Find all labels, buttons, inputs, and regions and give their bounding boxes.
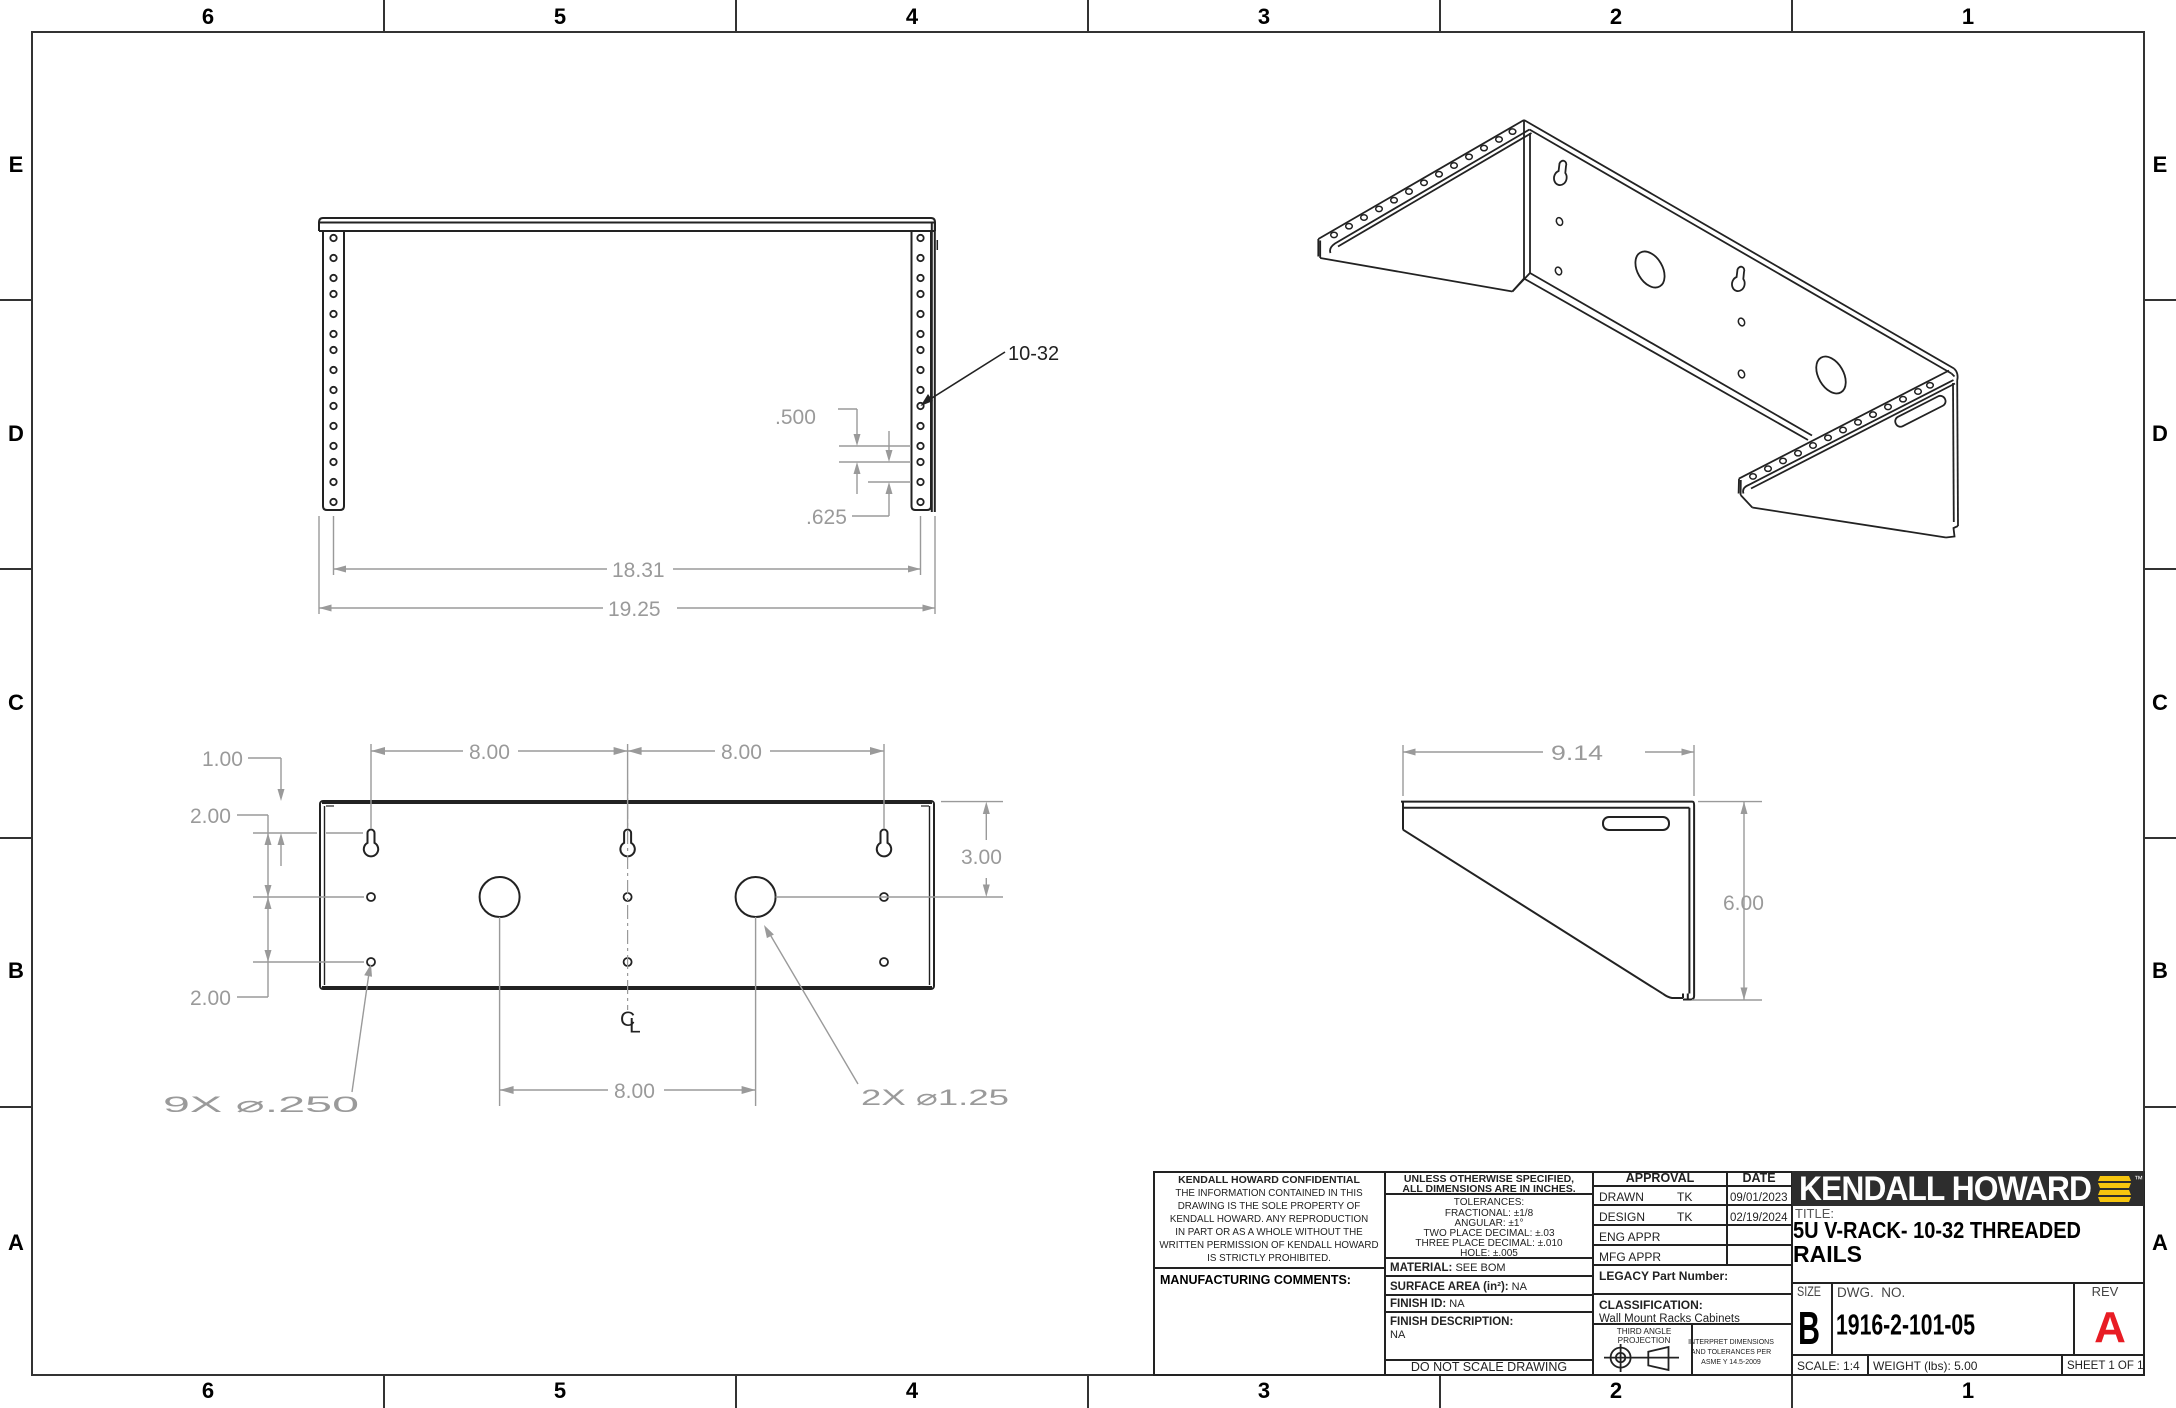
svg-text:AND TOLERANCES PER: AND TOLERANCES PER [1691,1349,1771,1356]
svg-text:B: B [1798,1302,1820,1354]
svg-text:RAILS: RAILS [1793,1241,1862,1267]
svg-text:HOLE: ±.005: HOLE: ±.005 [1460,1248,1518,1259]
svg-text:C: C [8,690,24,715]
svg-text:6: 6 [202,1378,214,1403]
svg-text:E: E [9,152,24,177]
svg-text:INTERPRET DIMENSIONS: INTERPRET DIMENSIONS [1688,1339,1774,1346]
svg-text:SIZE: SIZE [1797,1284,1821,1299]
svg-text:ENG APPR: ENG APPR [1599,1230,1661,1244]
svg-text:B: B [2152,958,2168,983]
svg-text:9.14: 9.14 [1551,742,1603,765]
svg-text:THIRD ANGLE: THIRD ANGLE [1617,1327,1672,1336]
svg-text:1.00: 1.00 [202,748,243,771]
svg-text:APPROVAL: APPROVAL [1626,1171,1695,1185]
svg-text:SHEET 1 OF 1: SHEET 1 OF 1 [2067,1360,2143,1372]
svg-text:FINISH DESCRIPTION:: FINISH DESCRIPTION: [1390,1316,1513,1328]
svg-text:6.00: 6.00 [1723,892,1764,915]
svg-text:KENDALL HOWARD: KENDALL HOWARD [1799,1170,2091,1208]
svg-text:NA: NA [1390,1329,1406,1341]
svg-text:DRAWN: DRAWN [1599,1190,1644,1204]
svg-text:18.31: 18.31 [612,559,665,582]
svg-text:2X ⌀1.25: 2X ⌀1.25 [861,1085,1009,1110]
svg-text:2.00: 2.00 [190,987,231,1010]
svg-text:WEIGHT (lbs): 5.00: WEIGHT (lbs): 5.00 [1873,1359,1978,1373]
svg-text:E: E [2153,152,2168,177]
svg-text:A: A [8,1230,24,1255]
svg-text:L: L [629,1015,641,1038]
svg-text:3.00: 3.00 [961,846,1002,869]
svg-text:.500: .500 [775,406,816,429]
svg-text:10-32: 10-32 [1008,343,1059,365]
svg-text:TK: TK [1677,1210,1692,1224]
svg-text:ASME Y 14.5-2009: ASME Y 14.5-2009 [1701,1359,1761,1366]
svg-text:8.00: 8.00 [469,741,510,764]
svg-text:B: B [8,958,24,983]
svg-text:WRITTEN PERMISSION OF KENDALL: WRITTEN PERMISSION OF KENDALL HOWARD [1159,1240,1378,1251]
svg-text:CLASSIFICATION:: CLASSIFICATION: [1599,1298,1703,1312]
svg-text:IS STRICTLY PROHIBITED.: IS STRICTLY PROHIBITED. [1207,1253,1331,1264]
svg-text:MATERIAL: SEE BOM: MATERIAL: SEE BOM [1390,1262,1506,1274]
svg-text:1916-2-101-05: 1916-2-101-05 [1836,1310,1975,1342]
svg-text:ALL DIMENSIONS ARE IN INCHES.: ALL DIMENSIONS ARE IN INCHES. [1402,1183,1575,1195]
svg-text:A: A [2094,1303,2126,1352]
svg-text:D: D [2152,421,2168,446]
svg-text:1: 1 [1962,4,1974,29]
svg-text:DESIGN: DESIGN [1599,1210,1645,1224]
svg-text:02/19/2024: 02/19/2024 [1730,1212,1788,1224]
svg-text:8.00: 8.00 [614,1080,655,1103]
svg-text:19.25: 19.25 [608,598,661,621]
svg-text:09/01/2023: 09/01/2023 [1730,1192,1788,1204]
svg-text:8.00: 8.00 [721,741,762,764]
svg-text:DATE: DATE [1742,1171,1775,1185]
svg-text:C: C [2152,690,2168,715]
svg-text:.625: .625 [806,506,847,529]
svg-text:SURFACE AREA (in²): NA: SURFACE AREA (in²): NA [1390,1281,1528,1293]
svg-text:4: 4 [906,1378,919,1403]
svg-text:6: 6 [202,4,214,29]
svg-text:DO NOT SCALE DRAWING: DO NOT SCALE DRAWING [1411,1360,1567,1374]
svg-text:FINISH ID: NA: FINISH ID: NA [1390,1298,1465,1310]
svg-text:MFG APPR: MFG APPR [1599,1250,1661,1264]
svg-text:5U V-RACK- 10-32 THREADED: 5U V-RACK- 10-32 THREADED [1793,1217,2081,1243]
svg-text:™: ™ [2134,1174,2143,1184]
svg-text:PROJECTION: PROJECTION [1618,1336,1671,1345]
svg-text:2: 2 [1610,1378,1622,1403]
svg-text:Wall Mount Racks Cabinets: Wall Mount Racks Cabinets [1599,1313,1740,1325]
svg-text:2.00: 2.00 [190,805,231,828]
svg-text:LEGACY Part Number:: LEGACY Part Number: [1599,1269,1728,1283]
svg-text:SCALE: 1:4: SCALE: 1:4 [1797,1359,1860,1373]
svg-text:A: A [2152,1230,2168,1255]
svg-text:9X ⌀.250: 9X ⌀.250 [163,1092,359,1117]
svg-text:THE INFORMATION CONTAINED IN T: THE INFORMATION CONTAINED IN THIS [1175,1188,1363,1199]
svg-text:3: 3 [1258,4,1270,29]
svg-text:REV: REV [2092,1284,2119,1299]
svg-text:DRAWING IS THE SOLE PROPERTY O: DRAWING IS THE SOLE PROPERTY OF [1178,1201,1361,1212]
svg-text:TK: TK [1677,1190,1692,1204]
svg-text:IN PART OR AS A WHOLE WITHOUT: IN PART OR AS A WHOLE WITHOUT THE [1175,1227,1363,1238]
svg-text:MANUFACTURING COMMENTS:: MANUFACTURING COMMENTS: [1160,1273,1351,1287]
svg-text:5: 5 [554,1378,566,1403]
svg-text:1: 1 [1962,1378,1974,1403]
svg-text:4: 4 [906,4,919,29]
svg-text:3: 3 [1258,1378,1270,1403]
svg-text:KENDALL HOWARD CONFIDENTIAL: KENDALL HOWARD CONFIDENTIAL [1178,1174,1360,1186]
svg-text:KENDALL HOWARD. ANY REPRODUCT: KENDALL HOWARD. ANY REPRODUCTION [1170,1214,1368,1225]
svg-text:D: D [8,421,24,446]
svg-text:5: 5 [554,4,566,29]
svg-text:TOLERANCES:: TOLERANCES: [1454,1197,1524,1208]
svg-text:2: 2 [1610,4,1622,29]
svg-text:DWG. NO.: DWG. NO. [1837,1285,1905,1300]
